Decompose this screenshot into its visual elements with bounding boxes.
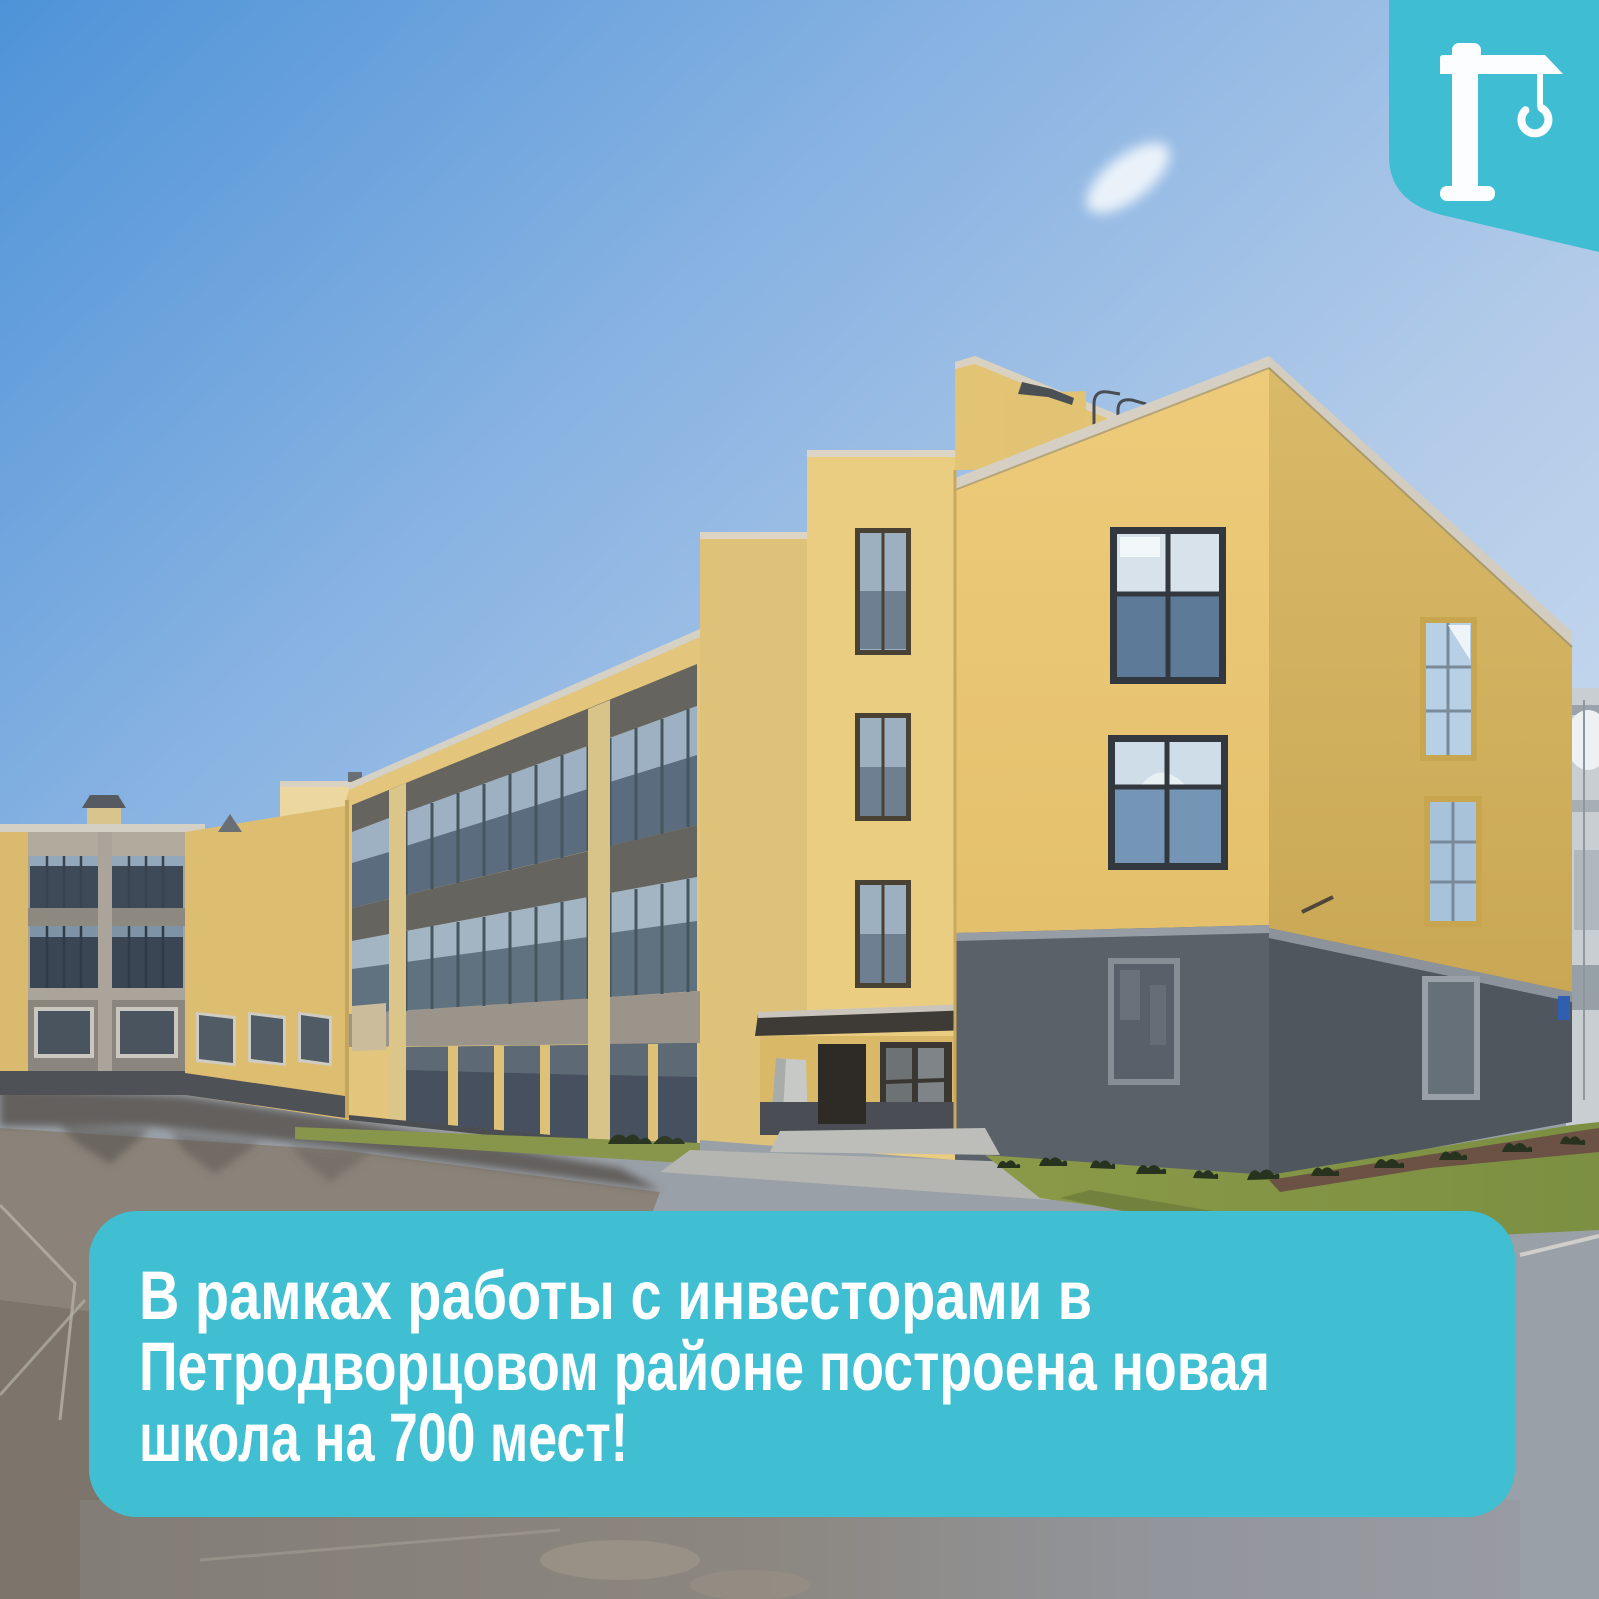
svg-text:школа на 700 мест!: школа на 700 мест! [139, 1399, 628, 1476]
svg-text:Петродворцовом районе построен: Петродворцовом районе построена новая [139, 1328, 1270, 1405]
svg-text:В рамках работы с инвесторами: В рамках работы с инвесторами в [139, 1257, 1092, 1334]
